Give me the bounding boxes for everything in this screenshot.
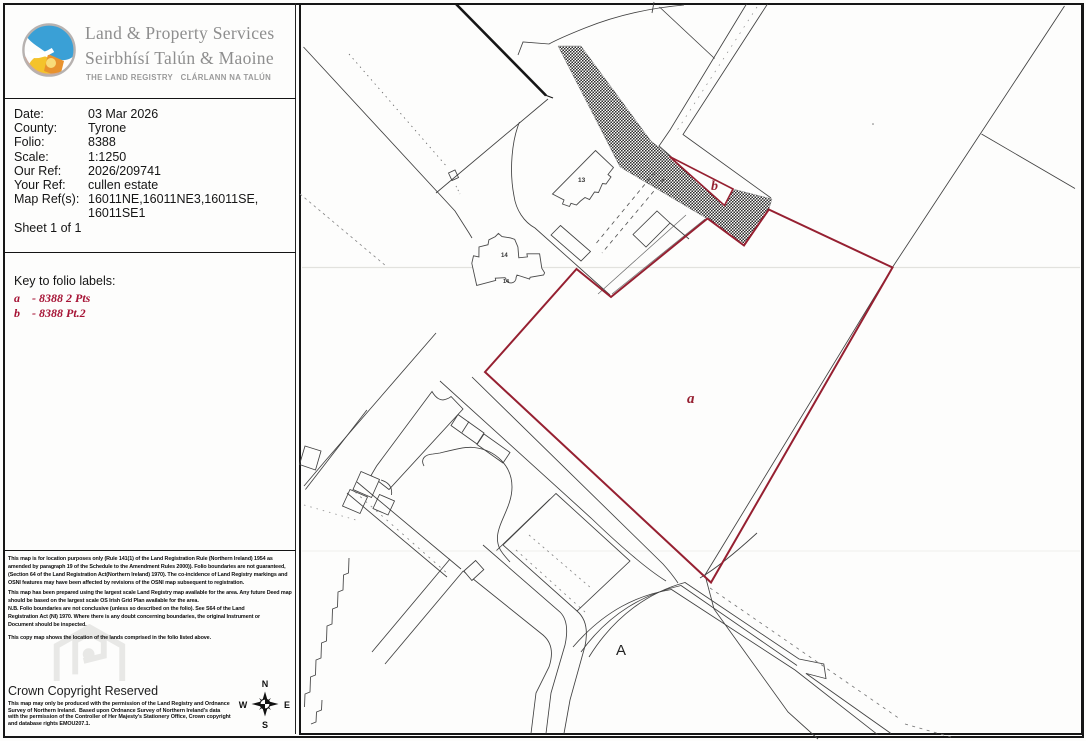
svg-text:a: a [687,391,695,407]
svg-text:14: 14 [503,279,510,285]
svg-text:b: b [711,179,718,194]
svg-text:14: 14 [501,253,508,259]
svg-text:A: A [616,642,626,659]
svg-text:13: 13 [578,177,586,184]
